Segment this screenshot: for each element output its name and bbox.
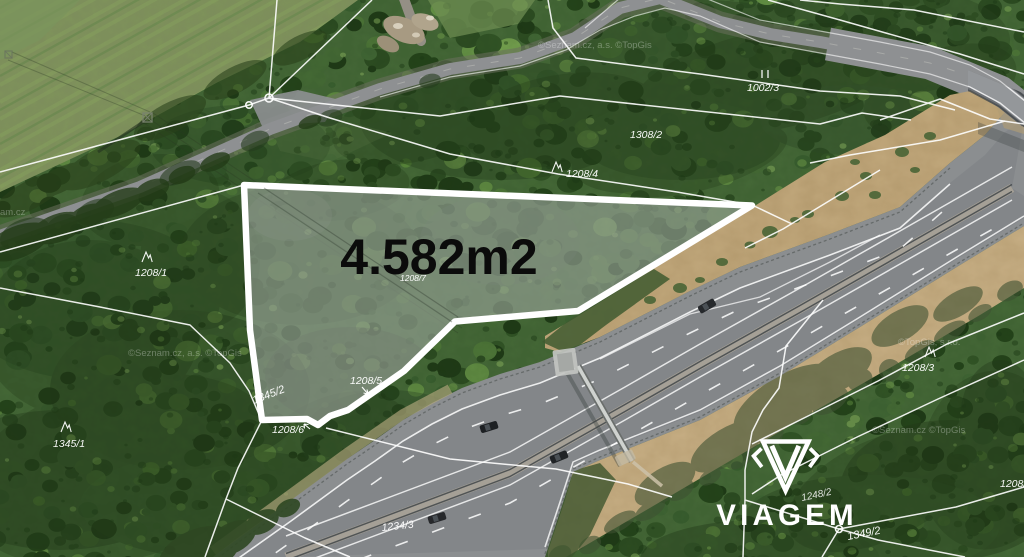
svg-text:4.582m2: 4.582m2: [340, 229, 537, 285]
svg-text:©Seznam.cz, a.s. ©TopGis: ©Seznam.cz, a.s. ©TopGis: [128, 348, 242, 359]
svg-text:©Seznam.cz, a.s. ©TopGis: ©Seznam.cz, a.s. ©TopGis: [538, 40, 652, 51]
svg-text:am.cz: am.cz: [0, 207, 26, 218]
svg-text:1208/4: 1208/4: [566, 168, 598, 180]
svg-text:1002/3: 1002/3: [747, 82, 779, 94]
svg-text:©TopGis, s.r.o.: ©TopGis, s.r.o.: [898, 337, 960, 348]
svg-text:©Seznam.cz ©TopGis: ©Seznam.cz ©TopGis: [872, 425, 965, 436]
svg-text:VIAGEM: VIAGEM: [716, 499, 858, 532]
svg-text:1208/: 1208/: [1000, 478, 1024, 490]
svg-text:1345/1: 1345/1: [53, 438, 85, 450]
svg-text:1208/1: 1208/1: [135, 267, 167, 279]
svg-text:1208/3: 1208/3: [902, 362, 934, 374]
svg-text:1308/2: 1308/2: [630, 129, 662, 141]
svg-text:1208/6: 1208/6: [272, 424, 304, 436]
svg-text:1208/7: 1208/7: [400, 273, 426, 283]
svg-text:1208/5: 1208/5: [350, 375, 382, 387]
